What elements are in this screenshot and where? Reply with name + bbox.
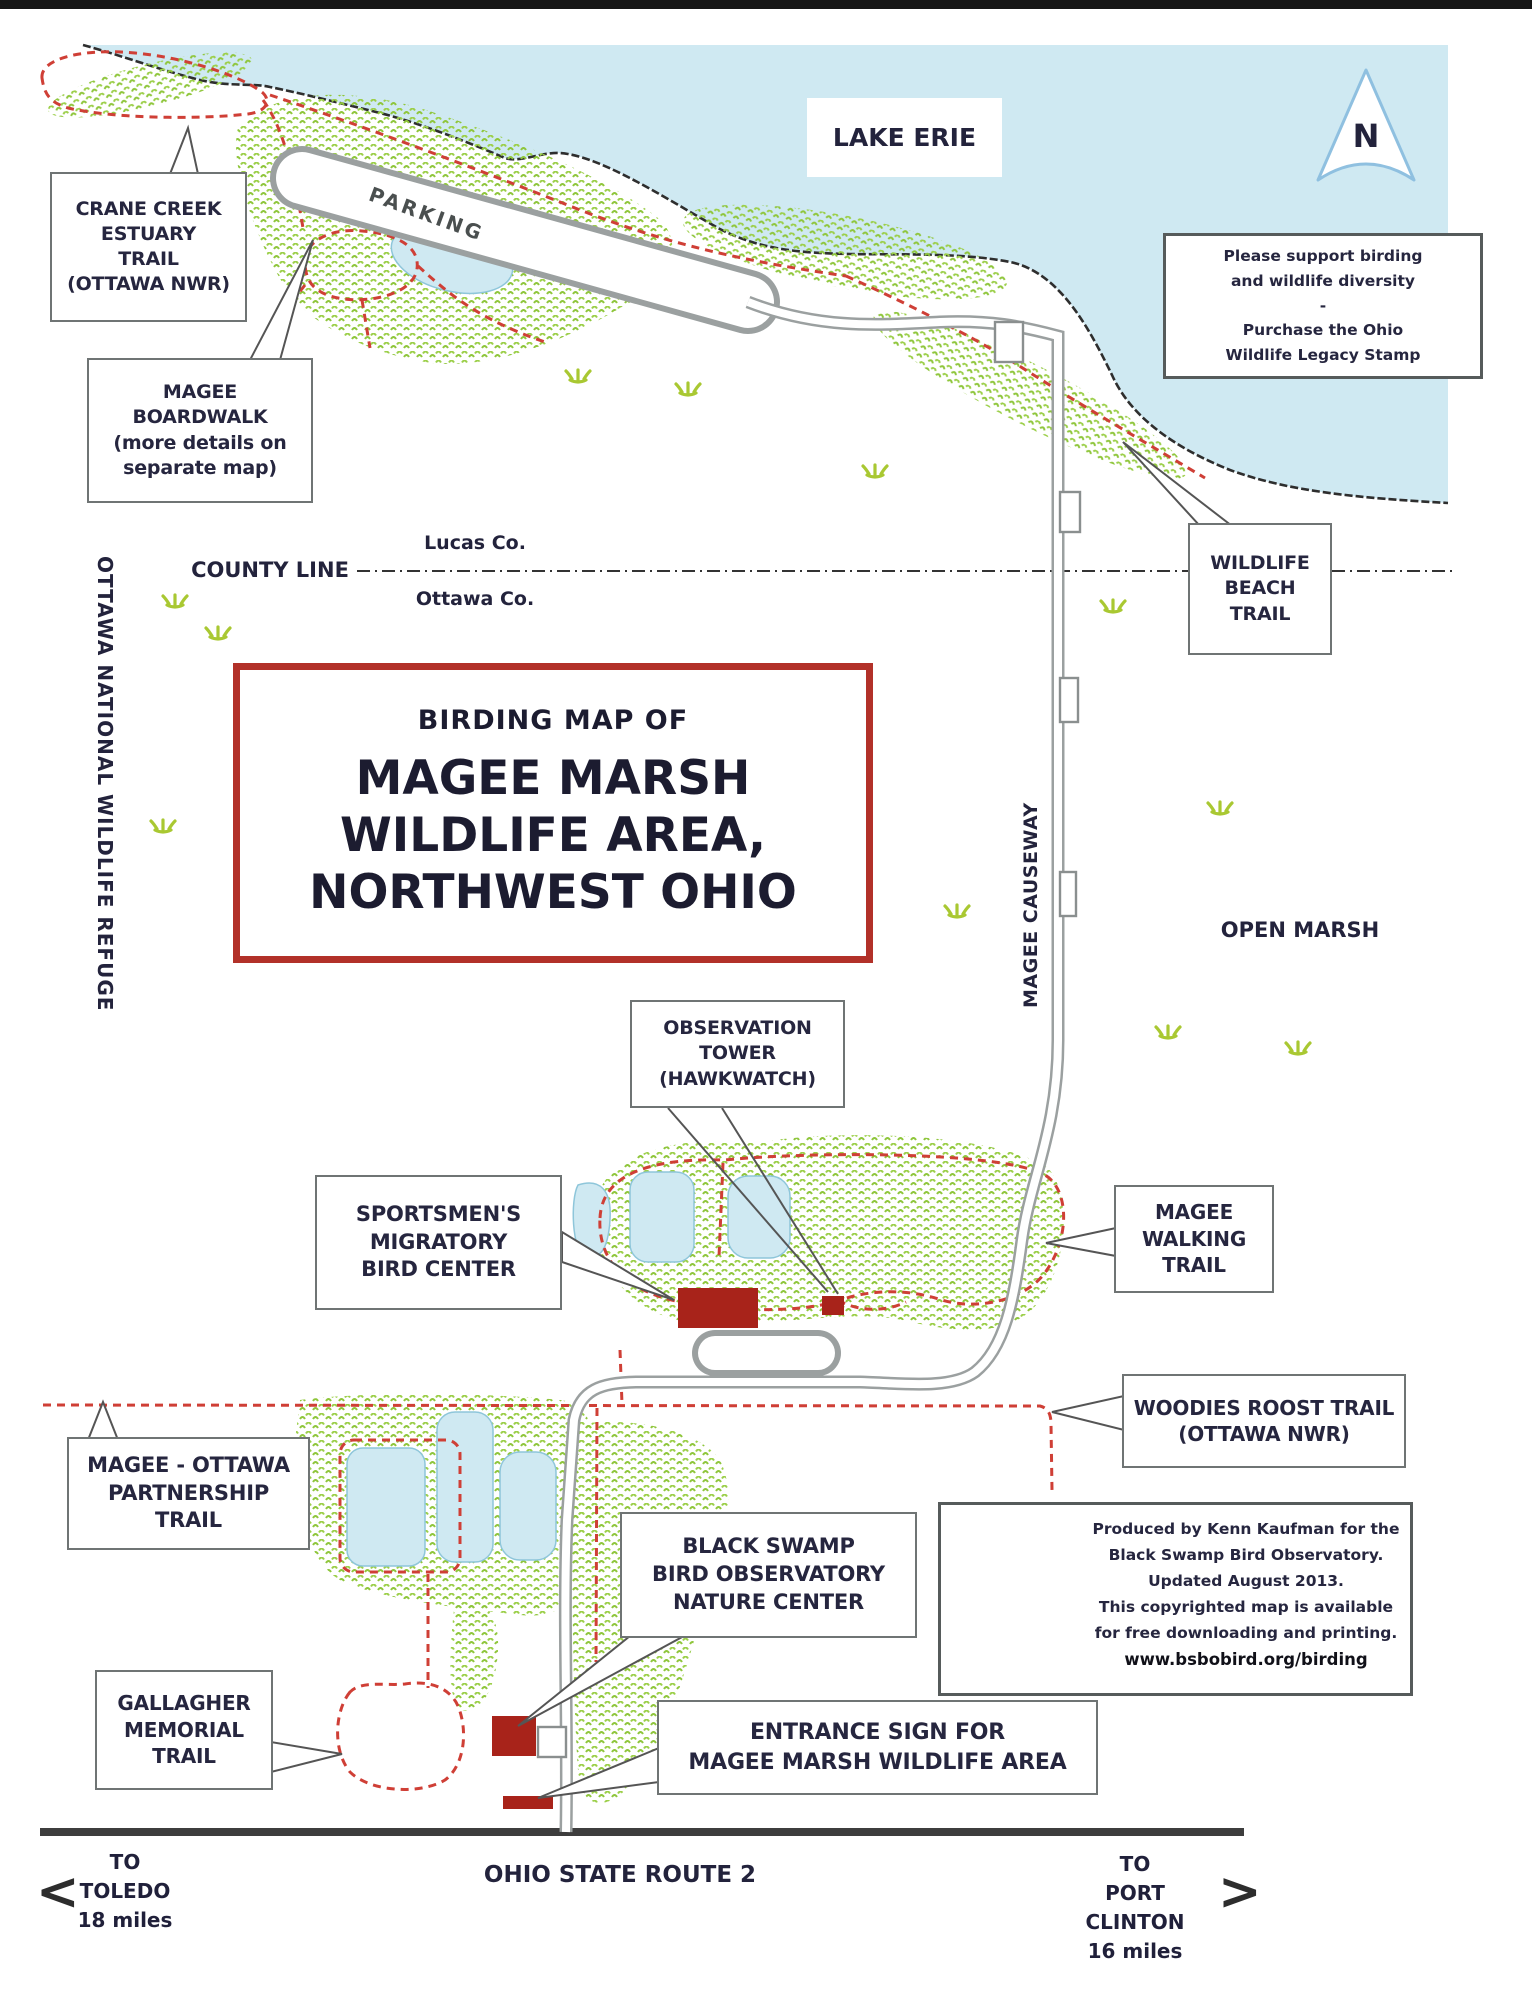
title-line-2: WILDLIFE AREA, — [340, 807, 766, 864]
ottawa-refuge-label: OTTAWA NATIONAL WILDLIFE REFUGE — [93, 556, 117, 1011]
callout-partnership-trail: MAGEE - OTTAWA PARTNERSHIP TRAIL — [67, 1437, 310, 1550]
callout-entrance-sign: ENTRANCE SIGN FOR MAGEE MARSH WILDLIFE A… — [657, 1700, 1098, 1795]
callout-magee-walking-trail: MAGEE WALKING TRAIL — [1114, 1185, 1274, 1293]
map-title-box: BIRDING MAP OF MAGEE MARSH WILDLIFE AREA… — [233, 663, 873, 963]
west-arrow-icon: < — [36, 1862, 80, 1922]
wildlife-stamp-note: Please support birding and wildlife dive… — [1163, 233, 1483, 379]
route-2-label: OHIO STATE ROUTE 2 — [400, 1862, 840, 1888]
credits-url: www.bsbobird.org/birding — [1090, 1646, 1402, 1674]
ottawa-county-label: Ottawa Co. — [415, 588, 535, 610]
callout-woodies-roost-trail: WOODIES ROOST TRAIL (OTTAWA NWR) — [1122, 1374, 1406, 1468]
lucas-county-label: Lucas Co. — [420, 532, 530, 554]
bird-center-building — [678, 1288, 758, 1328]
lake-erie-label: LAKE ERIE — [807, 98, 1002, 177]
title-kicker: BIRDING MAP OF — [418, 705, 688, 736]
credits-line: Produced by Kenn Kaufman for the — [1090, 1516, 1402, 1542]
title-line-1: MAGEE MARSH — [356, 750, 751, 807]
bsbo-building — [492, 1716, 536, 1756]
observation-tower-building — [822, 1296, 844, 1315]
county-line-label: COUNTY LINE — [185, 558, 355, 582]
credits-line: Updated August 2013. — [1090, 1568, 1402, 1594]
credits-line: for free downloading and printing. — [1090, 1620, 1402, 1646]
birding-map-page: N BLACK SWAMP BIRD OBSERVATORY BIRDING M… — [0, 0, 1532, 2000]
callout-bsbo-nature-center: BLACK SWAMP BIRD OBSERVATORY NATURE CENT… — [620, 1512, 917, 1638]
callout-sportsmens-bird-center: SPORTSMEN'S MIGRATORY BIRD CENTER — [315, 1175, 562, 1310]
callout-crane-creek: CRANE CREEK ESTUARY TRAIL (OTTAWA NWR) — [50, 172, 247, 322]
credits-line: Black Swamp Bird Observatory. — [1090, 1542, 1402, 1568]
callout-wildlife-beach-trail: WILDLIFE BEACH TRAIL — [1188, 523, 1332, 655]
open-marsh-label: OPEN MARSH — [1210, 918, 1390, 942]
credits-text: Produced by Kenn Kaufman for the Black S… — [1090, 1516, 1402, 1674]
callout-magee-boardwalk: MAGEE BOARDWALK (more details on separat… — [87, 358, 313, 503]
east-arrow-icon: > — [1218, 1862, 1262, 1922]
title-line-3: NORTHWEST OHIO — [309, 864, 797, 921]
magee-causeway-label: MAGEE CAUSEWAY — [1020, 802, 1042, 1008]
callout-observation-tower: OBSERVATION TOWER (HAWKWATCH) — [630, 1000, 845, 1108]
north-label: N — [1353, 117, 1380, 155]
credits-line: This copyrighted map is available — [1090, 1594, 1402, 1620]
callout-gallagher-trail: GALLAGHER MEMORIAL TRAIL — [95, 1670, 273, 1790]
to-port-clinton-label: TO PORT CLINTON 16 miles — [1060, 1850, 1210, 1966]
